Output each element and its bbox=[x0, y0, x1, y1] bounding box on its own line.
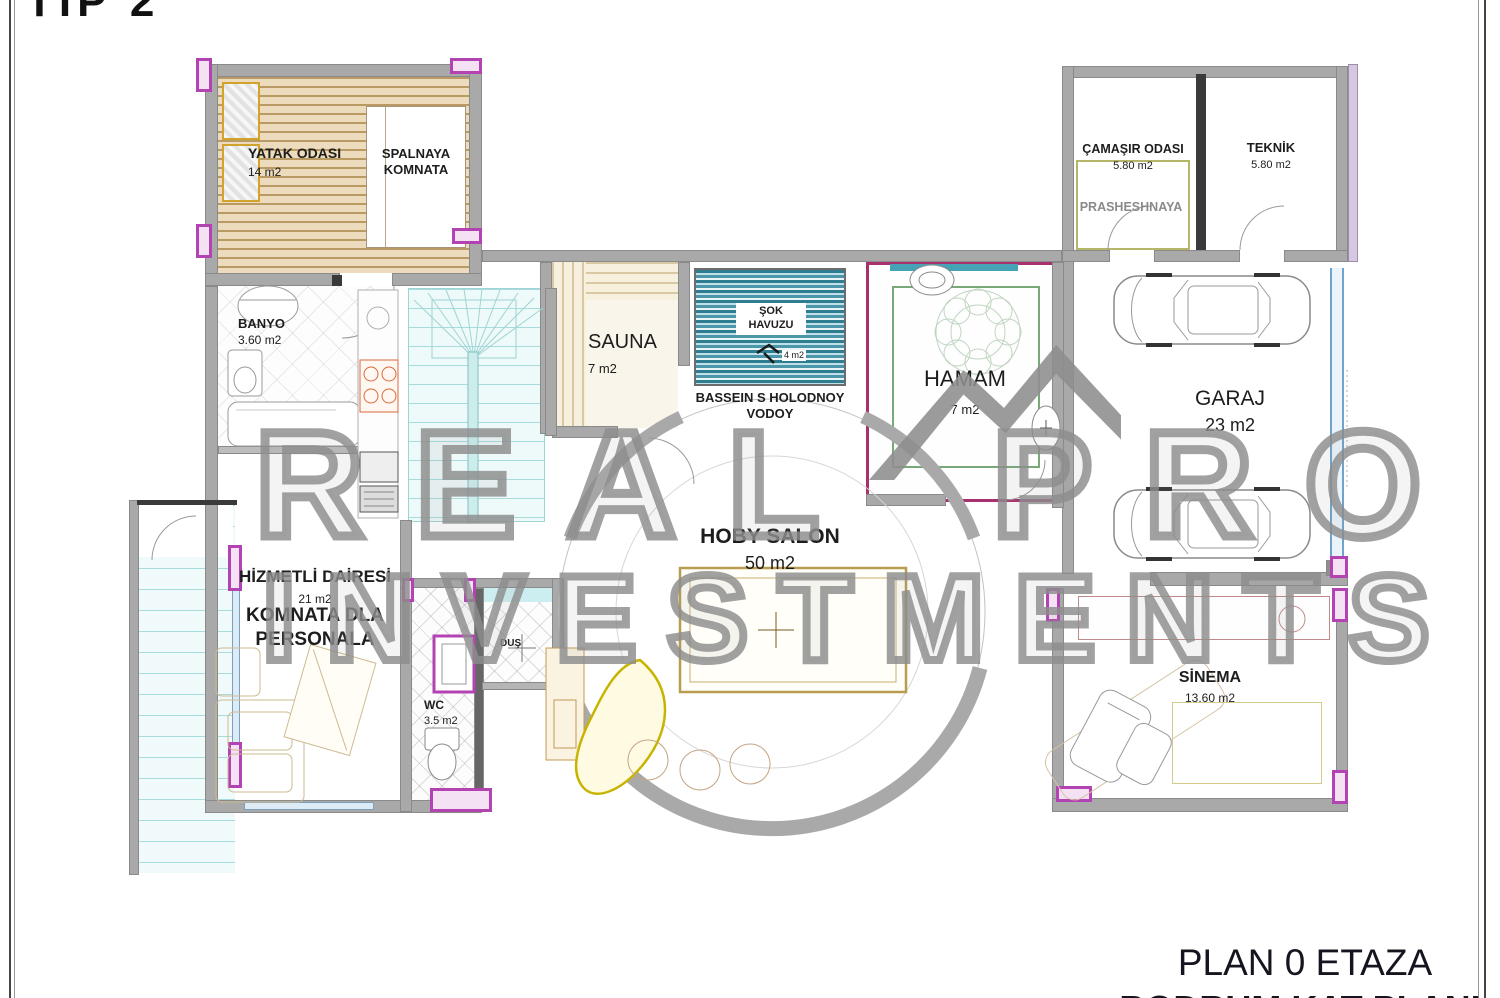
staff-furniture bbox=[216, 644, 376, 802]
floor-plan: YATAK ODASI 14 m2 SPALNAYA KOMNATA BANYO… bbox=[0, 0, 1500, 998]
pool-label: ŞOK HAVUZU bbox=[736, 303, 806, 335]
page-border-left-inner bbox=[14, 0, 15, 998]
kitchen-counter bbox=[358, 290, 398, 518]
plan-subtitle: BODRUM KAT PLANI bbox=[1110, 986, 1490, 998]
flower-ornament-icon bbox=[935, 289, 1021, 375]
hoby-label: HOBY SALON 50 m2 bbox=[650, 524, 890, 577]
page-border-right-inner bbox=[1478, 0, 1479, 998]
sinema-label: SİNEMA 13.60 m2 bbox=[1150, 668, 1270, 708]
wc-fixtures bbox=[425, 728, 459, 780]
staff-alt-label: KOMNATA DLA PERSONALA bbox=[215, 604, 415, 652]
teknik-label: TEKNİK 5.80 m2 bbox=[1212, 140, 1330, 173]
type-label: TİP 2 bbox=[26, 0, 160, 29]
staff-label: HİZMETLİ DAİRESİ 21 m2 bbox=[215, 566, 415, 609]
page-border-right bbox=[1484, 0, 1486, 998]
pool-area-label: 4 m2 bbox=[782, 350, 806, 361]
door-arcs bbox=[152, 206, 1284, 560]
sauna-label: SAUNA 7 m2 bbox=[588, 330, 657, 380]
console-table bbox=[546, 648, 584, 760]
page-border-left bbox=[9, 0, 11, 998]
stair-fan bbox=[414, 289, 543, 522]
bedroom-label: YATAK ODASI 14 m2 bbox=[248, 145, 341, 180]
car-top-view bbox=[1114, 275, 1310, 345]
garaj-label: GARAJ 23 m2 bbox=[1150, 386, 1310, 439]
hamam-basin bbox=[910, 265, 1060, 450]
speaker-icon bbox=[1279, 606, 1305, 632]
pool-alt-label: BASSEIN S HOLODNOY VODOY bbox=[680, 390, 860, 423]
laundry-label: ÇAMAŞIR ODASI 5.80 m2 bbox=[1072, 142, 1194, 173]
laundry-alt-label: PRASHESHNAYA bbox=[1068, 200, 1194, 216]
bedroom-alt-label: SPALNAYA KOMNATA bbox=[368, 146, 464, 179]
hamam-label: HAMAM 7 m2 bbox=[900, 365, 1030, 420]
washbasin bbox=[434, 636, 474, 692]
bathroom-fixtures bbox=[228, 286, 360, 446]
dus-label: DUŞ bbox=[500, 638, 521, 651]
banyo-label: BANYO 3.60 m2 bbox=[238, 316, 285, 349]
car-top-view bbox=[1114, 489, 1310, 559]
swimmer-icon bbox=[757, 345, 779, 363]
wc-label: WC 3.5 m2 bbox=[424, 698, 458, 729]
billiard-table bbox=[680, 568, 906, 692]
bar-counter bbox=[576, 660, 665, 794]
plan-title: PLAN 0 ETAZA bbox=[1140, 940, 1470, 986]
